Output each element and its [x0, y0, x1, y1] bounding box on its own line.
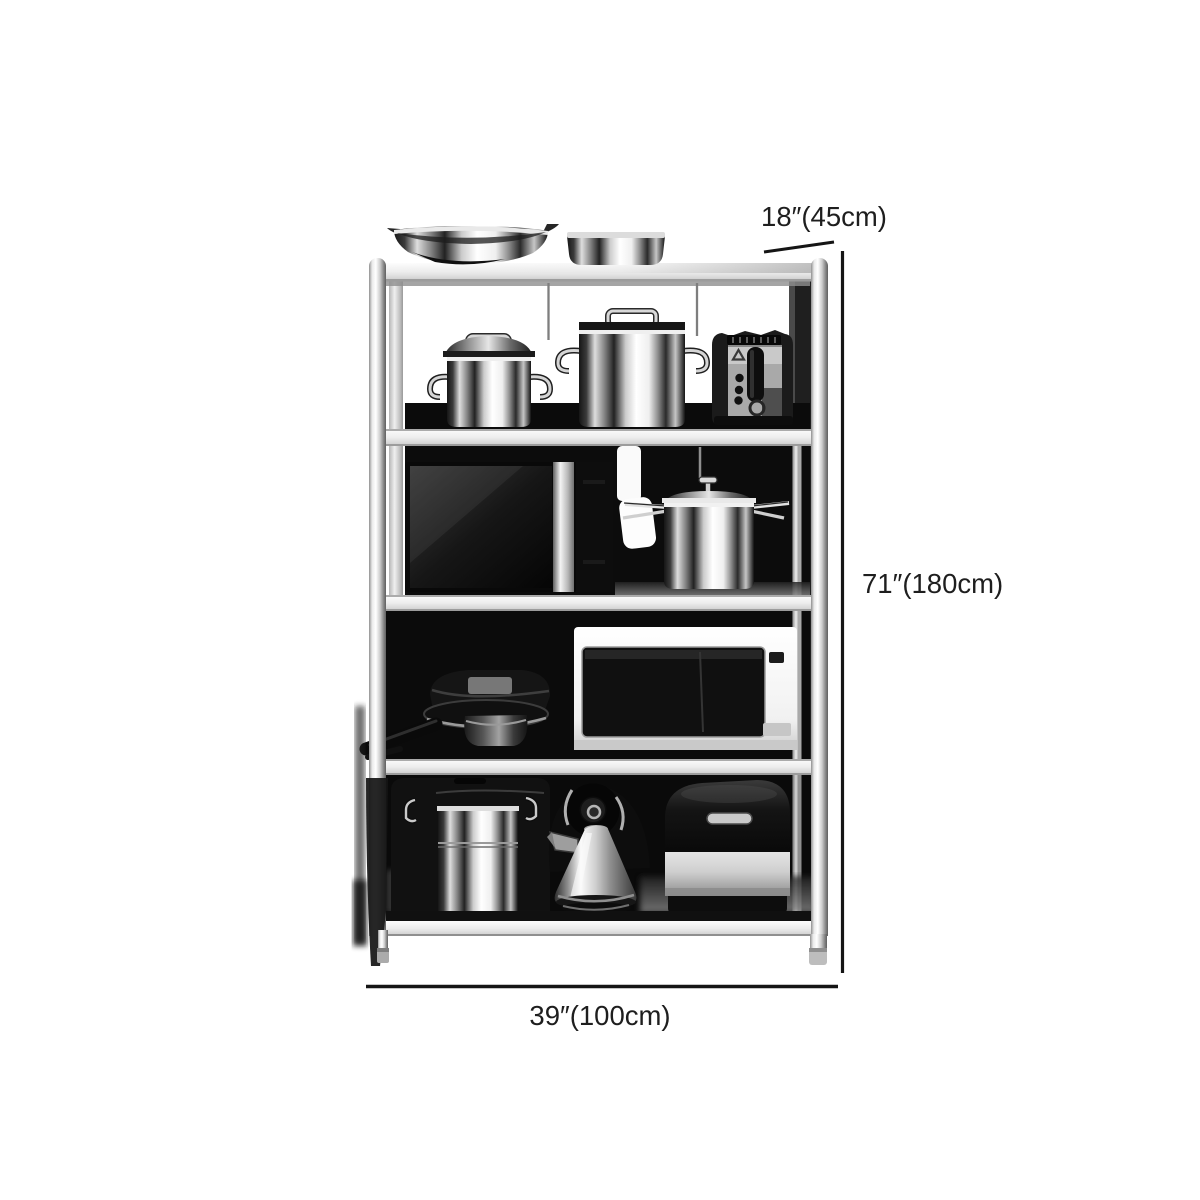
- svg-text:18″(45cm): 18″(45cm): [761, 201, 887, 232]
- svg-text:39″(100cm): 39″(100cm): [529, 1000, 670, 1031]
- svg-text:71″(180cm): 71″(180cm): [862, 568, 1003, 599]
